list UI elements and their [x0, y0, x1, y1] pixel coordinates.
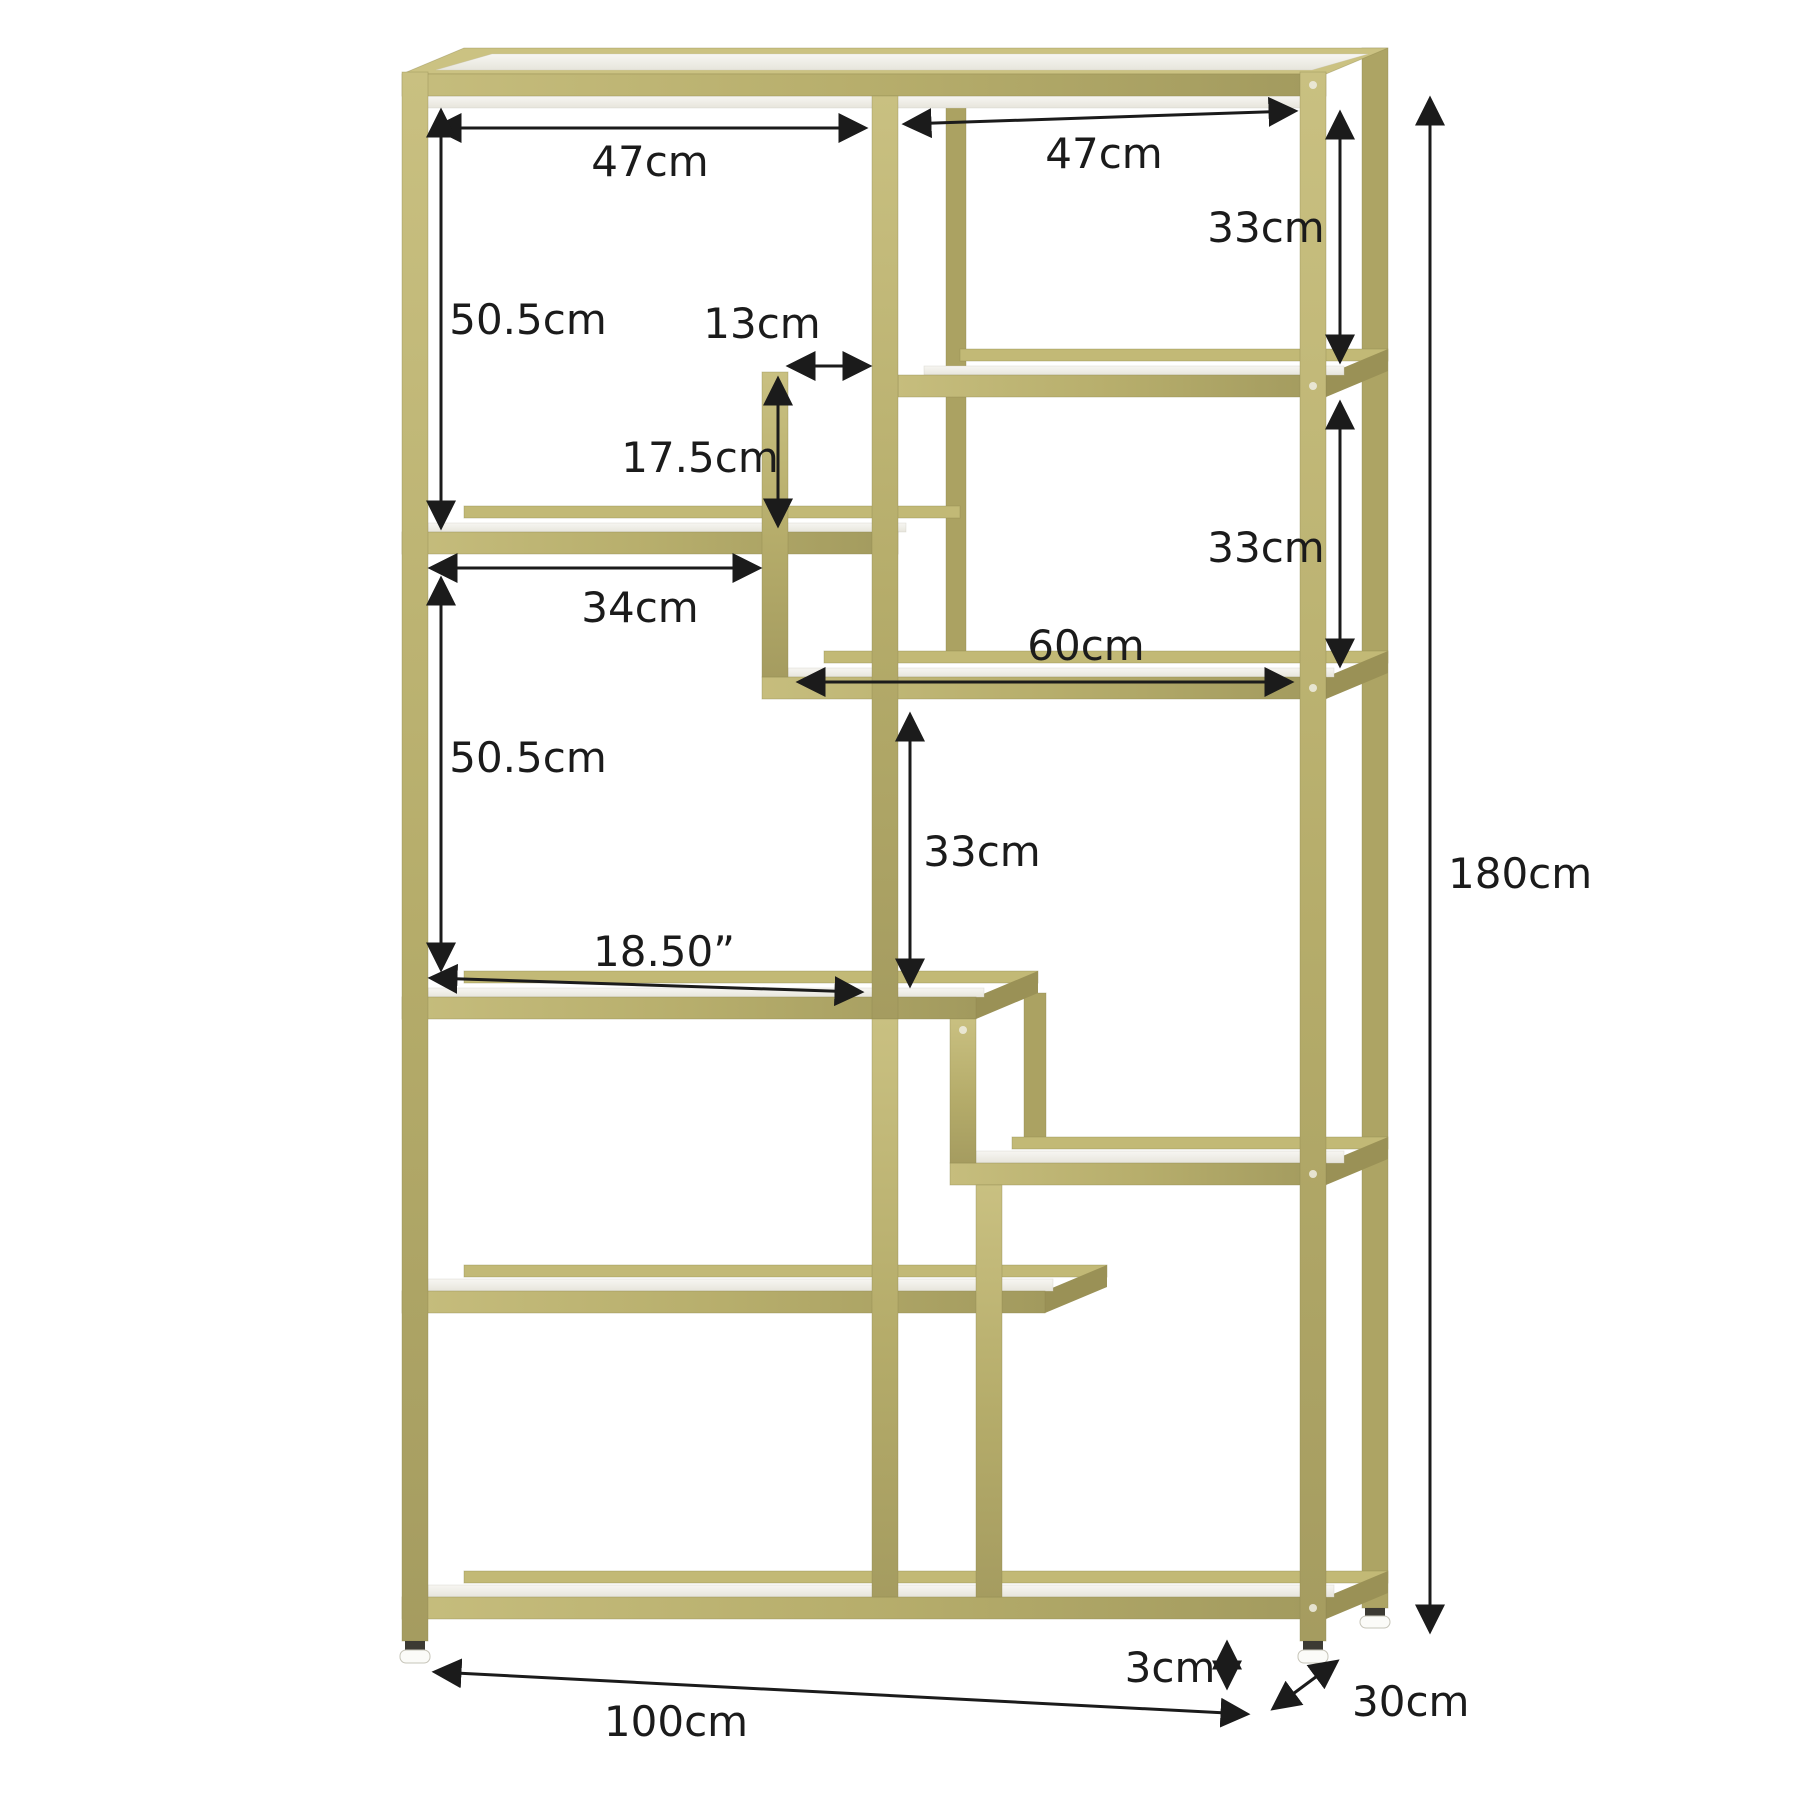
- marble-edge: [924, 366, 1344, 375]
- dim-overall-height: 180cm: [1430, 100, 1592, 1630]
- dim-label: 180cm: [1448, 849, 1592, 898]
- top-face-marble: [436, 54, 1368, 70]
- screw: [1309, 81, 1317, 89]
- right-foot-glide: [1298, 1650, 1328, 1663]
- dim-label: 100cm: [604, 1697, 748, 1746]
- dim-label: 13cm: [703, 299, 820, 348]
- screw: [959, 1026, 967, 1034]
- dim-hanging-post-height: 17.5cm: [621, 380, 779, 524]
- back-right-foot-glide: [1360, 1616, 1390, 1628]
- dim-lower-left-height: 50.5cm: [441, 580, 607, 968]
- right-foot: [1303, 1641, 1323, 1650]
- post-mid-lower-a: [872, 1019, 898, 1597]
- screw: [1309, 382, 1317, 390]
- marble-edge: [428, 1279, 1053, 1291]
- dim-center-height: 33cm: [910, 716, 1041, 984]
- dim-upper-left-height: 50.5cm: [441, 112, 607, 526]
- screw: [1309, 1604, 1317, 1612]
- dim-label: 34cm: [581, 583, 698, 632]
- marble-edge: [428, 523, 906, 532]
- dim-line: [1274, 1662, 1336, 1708]
- dim-top-left-width: 47cm: [436, 128, 864, 186]
- dim-label: 30cm: [1352, 1677, 1469, 1726]
- dim-label: 47cm: [591, 137, 708, 186]
- dim-overall-depth: 30cm: [1274, 1662, 1469, 1726]
- screw: [1309, 684, 1317, 692]
- bookshelf-dimension-diagram: 47cm 47cm 33cm 50.5cm 13cm 17.5cm 34cm: [0, 0, 1800, 1800]
- post-hanging: [762, 372, 788, 677]
- dim-label: 50.5cm: [449, 733, 607, 782]
- shelf-rail-upper-right: [898, 375, 1326, 397]
- left-foot: [405, 1641, 425, 1650]
- shelf-rail-top: [402, 74, 1326, 96]
- back-box-post: [1024, 993, 1046, 1143]
- shelf-rail-bottom: [402, 1597, 1326, 1619]
- dim-label: 33cm: [1207, 203, 1324, 252]
- shelf-rail-mid-left: [402, 532, 898, 554]
- shelf-back-rail: [464, 1571, 1388, 1583]
- dim-label: 3cm: [1125, 1643, 1216, 1692]
- dim-mid-left-width: 34cm: [432, 568, 758, 632]
- dim-label: 17.5cm: [621, 433, 779, 482]
- dim-label: 33cm: [923, 827, 1040, 876]
- screw: [1309, 1170, 1317, 1178]
- top-face: [402, 48, 1388, 74]
- post-box: [950, 1019, 976, 1163]
- dim-label: 18.50”: [593, 927, 735, 976]
- shelf-rail-lower-left: [402, 1291, 1045, 1313]
- shelf-rail-small-right: [950, 1163, 1326, 1185]
- dimension-annotations: 47cm 47cm 33cm 50.5cm 13cm 17.5cm 34cm: [432, 100, 1592, 1746]
- dim-label: 47cm: [1045, 129, 1162, 178]
- dim-label: 33cm: [1207, 523, 1324, 572]
- shelf-back-rail: [464, 1265, 1107, 1277]
- post-right: [1300, 72, 1326, 1641]
- post-center: [872, 96, 898, 1019]
- marble-edge: [428, 988, 984, 997]
- dim-center-gap-width: 13cm: [703, 299, 868, 366]
- dim-label: 50.5cm: [449, 295, 607, 344]
- marble-edge: [976, 1151, 1344, 1163]
- dim-foot-height: 3cm: [1125, 1643, 1227, 1692]
- marble-edge: [420, 96, 1320, 108]
- post-left: [402, 72, 428, 1641]
- left-foot-glide: [400, 1650, 430, 1663]
- post-mid-lower-b: [976, 1185, 1002, 1597]
- dim-label: 60cm: [1027, 621, 1144, 670]
- shelf-rail-right-60: [762, 677, 1326, 699]
- back-right-post: [1362, 48, 1388, 1608]
- bookshelf-illustration: [400, 48, 1390, 1663]
- shelf-back-rail: [1012, 1137, 1388, 1149]
